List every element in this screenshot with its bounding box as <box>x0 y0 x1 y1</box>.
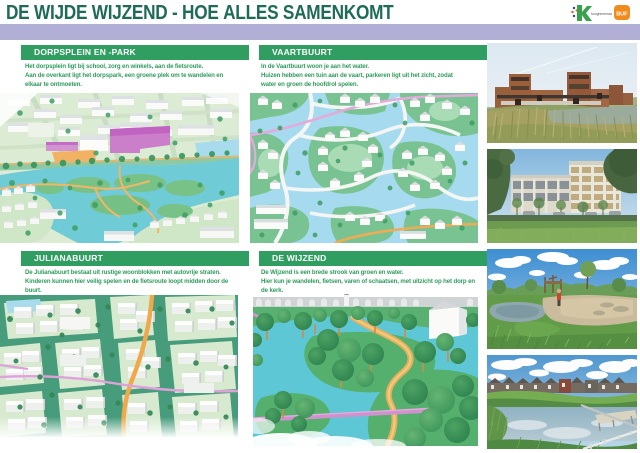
svg-text:BUF: BUF <box>616 12 628 18</box>
svg-text:hoogheemraadschap: hoogheemraadschap <box>591 12 612 16</box>
